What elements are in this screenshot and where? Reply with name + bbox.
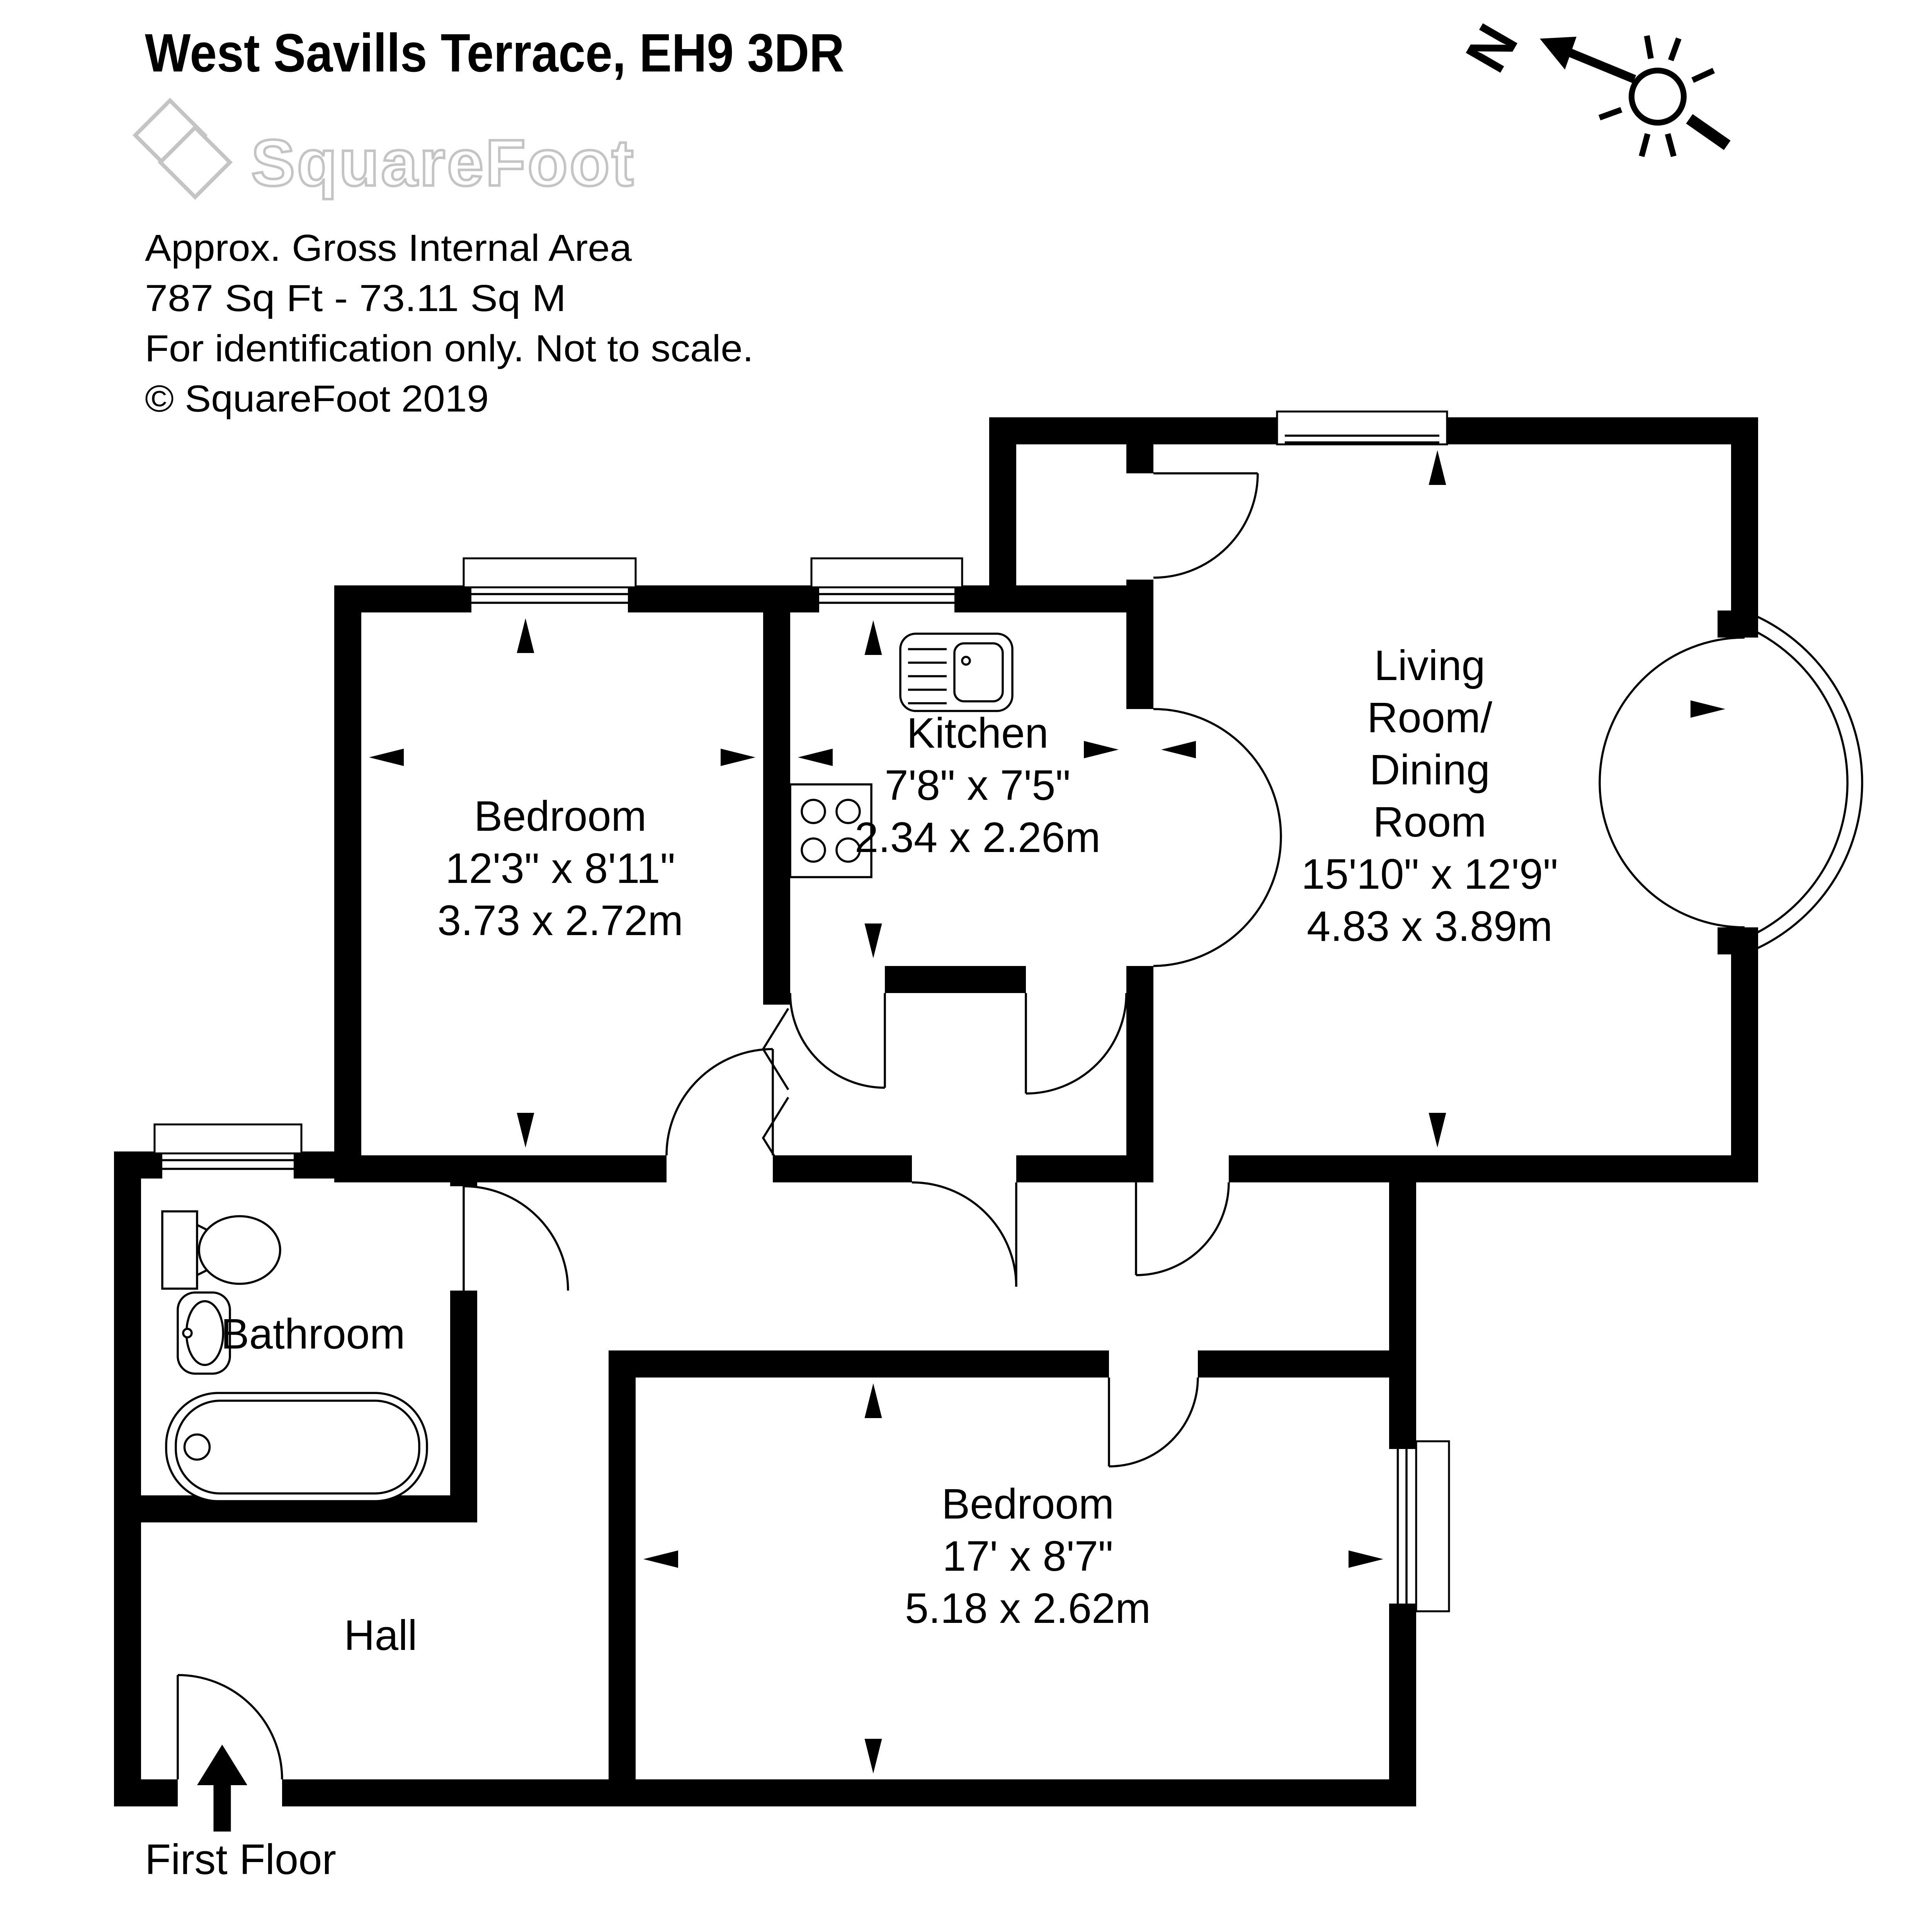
svg-text:Dining: Dining <box>1369 746 1490 794</box>
kitchen-sink-icon <box>900 634 1012 711</box>
arrow-left-icon <box>798 749 833 766</box>
north-arrow-shaft <box>1569 52 1634 79</box>
north-label: N <box>1453 14 1530 82</box>
arrow-left-icon <box>369 749 404 766</box>
svg-text:17' x 8'7": 17' x 8'7" <box>942 1532 1113 1580</box>
kitchen-label: Kitchen 7'8" x 7'5" 2.34 x 2.26m <box>855 709 1100 861</box>
area-line: Approx. Gross Internal Area <box>145 227 632 269</box>
bedroom2-window <box>1398 1441 1449 1611</box>
area-line: 787 Sq Ft - 73.11 Sq M <box>145 277 566 319</box>
svg-text:3.73 x 2.72m: 3.73 x 2.72m <box>437 897 683 944</box>
floor-label: First Floor <box>145 1836 336 1883</box>
hall-label: Hall <box>344 1612 417 1659</box>
squarefoot-logo: SquareFoot <box>135 100 635 200</box>
svg-text:2.34 x 2.26m: 2.34 x 2.26m <box>855 814 1100 861</box>
logo-text: SquareFoot <box>251 126 635 200</box>
svg-text:15'10" x 12'9": 15'10" x 12'9" <box>1301 850 1558 898</box>
entrance-arrow-icon <box>197 1745 247 1832</box>
copyright: © SquareFoot 2019 <box>145 378 489 420</box>
arrow-left-icon <box>1161 741 1196 759</box>
svg-text:Living: Living <box>1374 642 1485 689</box>
arrow-down-icon <box>865 1739 882 1774</box>
bedroom1-window <box>464 558 636 603</box>
living-room-window <box>1277 412 1447 444</box>
arrow-down-icon <box>517 1113 534 1148</box>
living-hall-door <box>1136 1182 1229 1275</box>
bay-window <box>1600 614 1862 951</box>
bathtub-icon <box>166 1393 427 1501</box>
living-room-entry-door <box>1153 473 1258 578</box>
kitchen-window <box>811 558 962 603</box>
kitchen-lobby-door <box>790 993 885 1088</box>
arrow-right-icon <box>1349 1551 1383 1568</box>
kitchen-side-door <box>1026 993 1126 1094</box>
living-room-label: Living Room/ Dining Room 15'10" x 12'9" … <box>1301 642 1558 950</box>
bedroom1-bifold-door <box>763 1009 788 1179</box>
arrow-left-icon <box>643 1551 678 1568</box>
svg-text:12'3" x 8'11": 12'3" x 8'11" <box>445 845 675 892</box>
svg-text:Room: Room <box>1373 798 1486 846</box>
arrow-right-icon <box>1690 701 1725 718</box>
area-summary: Approx. Gross Internal Area 787 Sq Ft - … <box>145 227 753 420</box>
toilet-icon <box>162 1211 280 1289</box>
bathroom-label: Bathroom <box>221 1310 405 1358</box>
arrow-right-icon <box>1084 741 1119 759</box>
arrow-right-icon <box>721 749 755 766</box>
svg-text:Bedroom: Bedroom <box>474 793 646 840</box>
store-door <box>912 1182 1016 1287</box>
bedroom1-door <box>667 1049 773 1155</box>
bathroom-window <box>155 1124 301 1169</box>
svg-text:Room/: Room/ <box>1367 694 1492 742</box>
page-title: West Savills Terrace, EH9 3DR <box>145 22 844 83</box>
bedroom1-label: Bedroom 12'3" x 8'11" 3.73 x 2.72m <box>437 793 683 944</box>
arrow-up-icon <box>865 620 882 655</box>
bedroom2-door <box>1109 1378 1198 1466</box>
svg-text:5.18 x 2.62m: 5.18 x 2.62m <box>905 1585 1151 1632</box>
arrow-down-icon <box>865 923 882 958</box>
svg-text:Kitchen: Kitchen <box>907 709 1049 757</box>
svg-text:Bedroom: Bedroom <box>942 1480 1114 1528</box>
floorplan-canvas: West Savills Terrace, EH9 3DR SquareFoot… <box>0 0 1932 1932</box>
svg-text:7'8" x 7'5": 7'8" x 7'5" <box>885 762 1071 809</box>
sun-rays-icon <box>1600 36 1728 156</box>
svg-text:4.83 x 3.89m: 4.83 x 3.89m <box>1307 903 1553 950</box>
bedroom2-label: Bedroom 17' x 8'7" 5.18 x 2.62m <box>905 1480 1151 1632</box>
area-line: For identification only. Not to scale. <box>145 327 753 369</box>
bathroom-door <box>464 1186 568 1291</box>
arrow-down-icon <box>1429 1113 1446 1148</box>
arrow-up-icon <box>865 1383 882 1418</box>
sun-icon <box>1632 71 1684 123</box>
arrow-up-icon <box>1429 450 1446 485</box>
north-compass: N <box>1453 14 1727 156</box>
arrow-up-icon <box>517 618 534 653</box>
